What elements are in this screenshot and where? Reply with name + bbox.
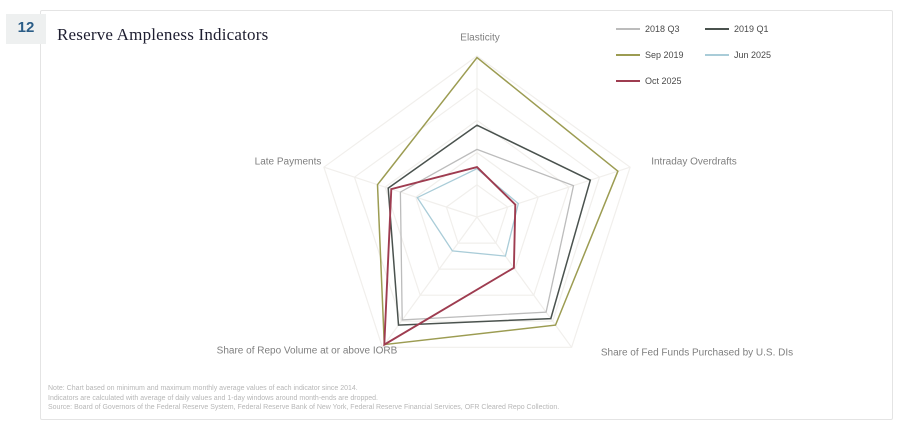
footnote-source: Source: Board of Governors of the Federa… [48, 403, 559, 413]
axis-label-fed-funds: Share of Fed Funds Purchased by U.S. DIs [601, 348, 793, 359]
legend-item-jun-2025[interactable]: Jun 2025 [705, 48, 771, 61]
axis-label-repo-volume: Share of Repo Volume at or above IORB [217, 346, 398, 357]
legend-label: Oct 2025 [645, 76, 682, 86]
chart-legend: 2018 Q32019 Q1Sep 2019Jun 2025Oct 2025 [616, 22, 771, 87]
slide: 12 Reserve Ampleness Indicators Elastici… [0, 0, 900, 428]
legend-item-2018-q3[interactable]: 2018 Q3 [616, 22, 705, 35]
footnotes: Note: Chart based on minimum and maximum… [48, 384, 559, 413]
legend-label: 2019 Q1 [734, 24, 769, 34]
footnote-note: Note: Chart based on minimum and maximum… [48, 384, 559, 394]
legend-swatch [705, 28, 729, 30]
legend-swatch [705, 54, 729, 56]
legend-item-oct-2025[interactable]: Oct 2025 [616, 74, 705, 87]
legend-swatch [616, 54, 640, 56]
legend-swatch [616, 80, 640, 82]
legend-item-sep-2019[interactable]: Sep 2019 [616, 48, 705, 61]
axis-spoke [382, 217, 477, 347]
legend-label: 2018 Q3 [645, 24, 680, 34]
footnote-method: Indicators are calculated with average o… [48, 394, 559, 404]
series-sep-2019[interactable] [378, 58, 618, 345]
legend-label: Sep 2019 [645, 50, 684, 60]
axis-spoke [477, 167, 630, 217]
axis-label-intraday-overdrafts: Intraday Overdrafts [651, 157, 737, 168]
legend-label: Jun 2025 [734, 50, 771, 60]
legend-item-2019-q1[interactable]: 2019 Q1 [705, 22, 771, 35]
axis-label-late-payments: Late Payments [255, 157, 322, 168]
legend-swatch [616, 28, 640, 30]
series-2018-q3[interactable] [400, 149, 573, 320]
axis-label-elasticity: Elasticity [460, 33, 499, 44]
